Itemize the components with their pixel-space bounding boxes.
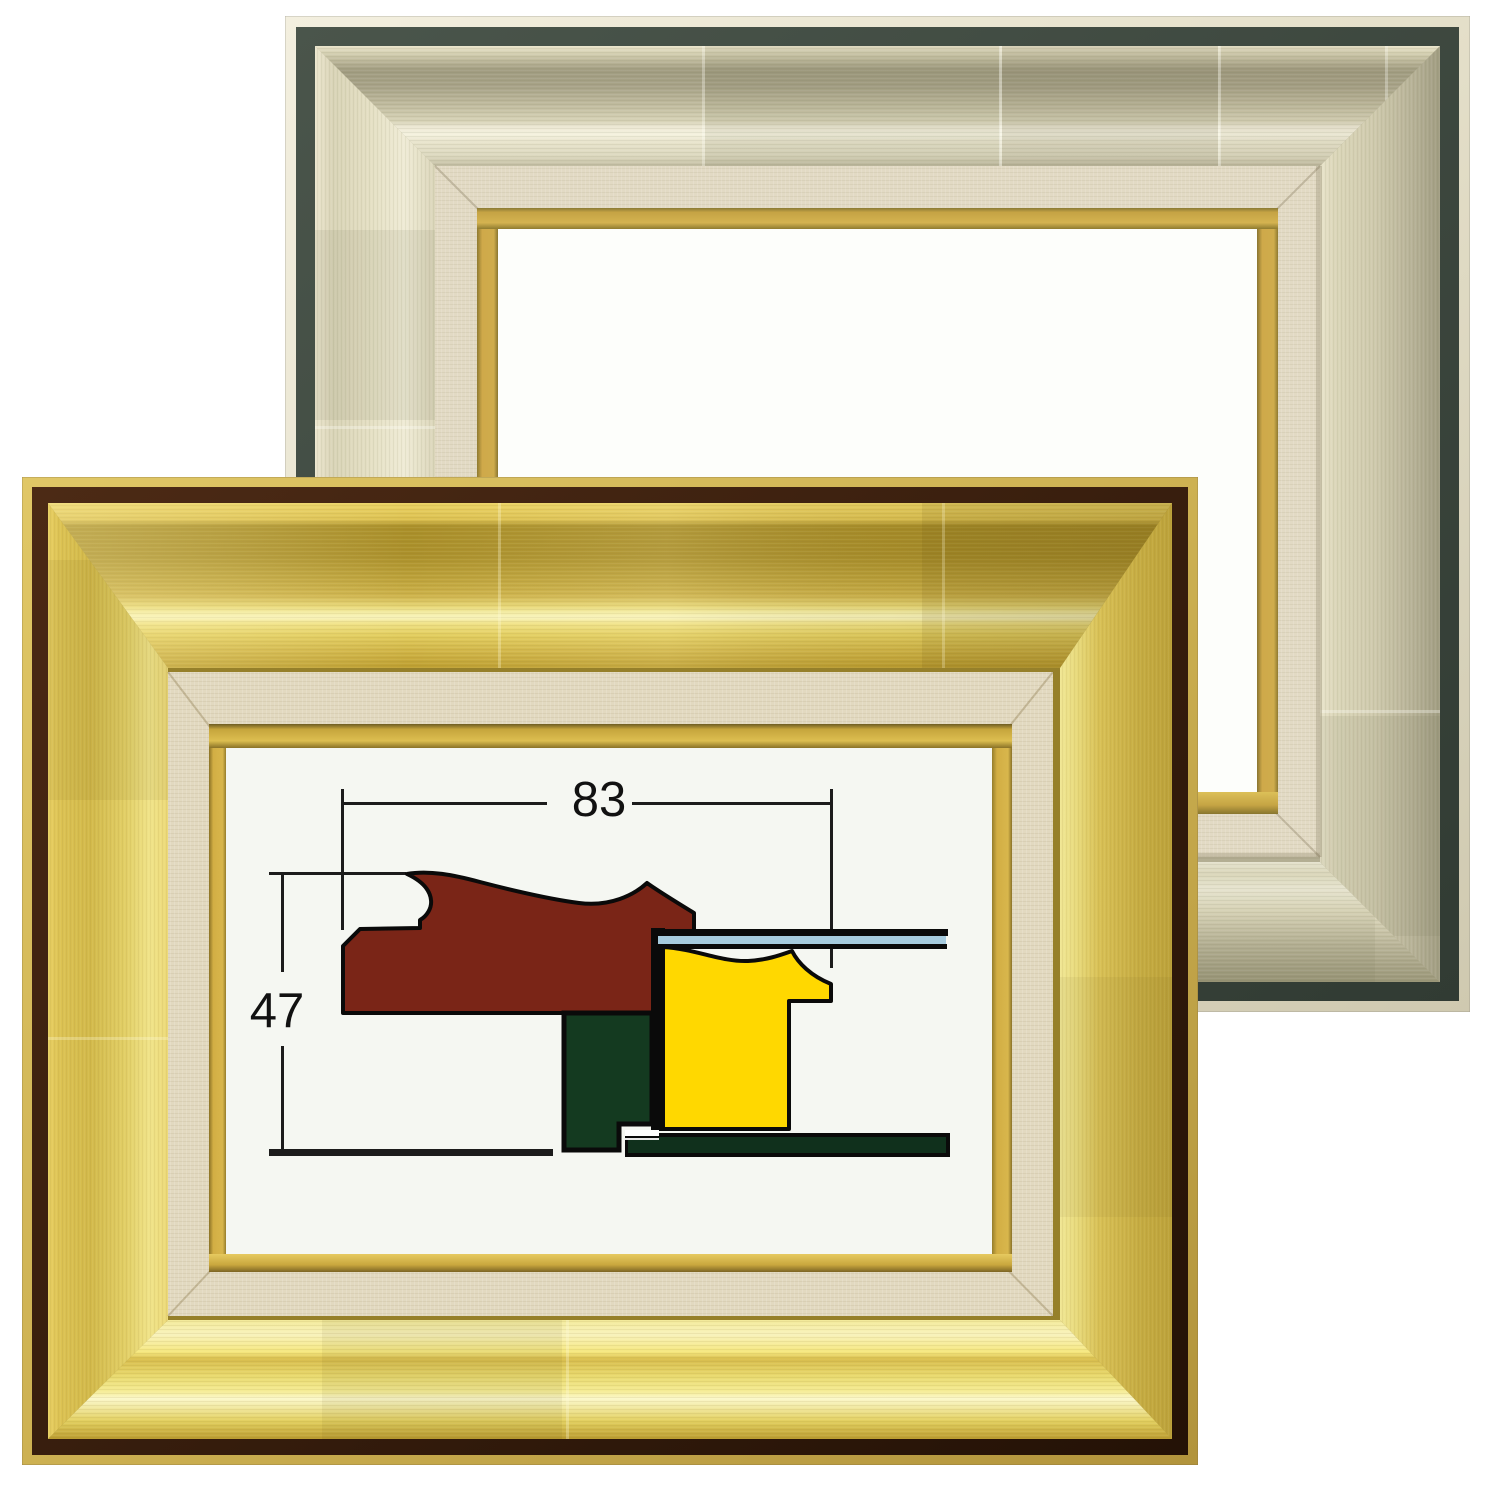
svg-text:47: 47 <box>250 984 305 1038</box>
svg-text:83: 83 <box>572 773 627 827</box>
